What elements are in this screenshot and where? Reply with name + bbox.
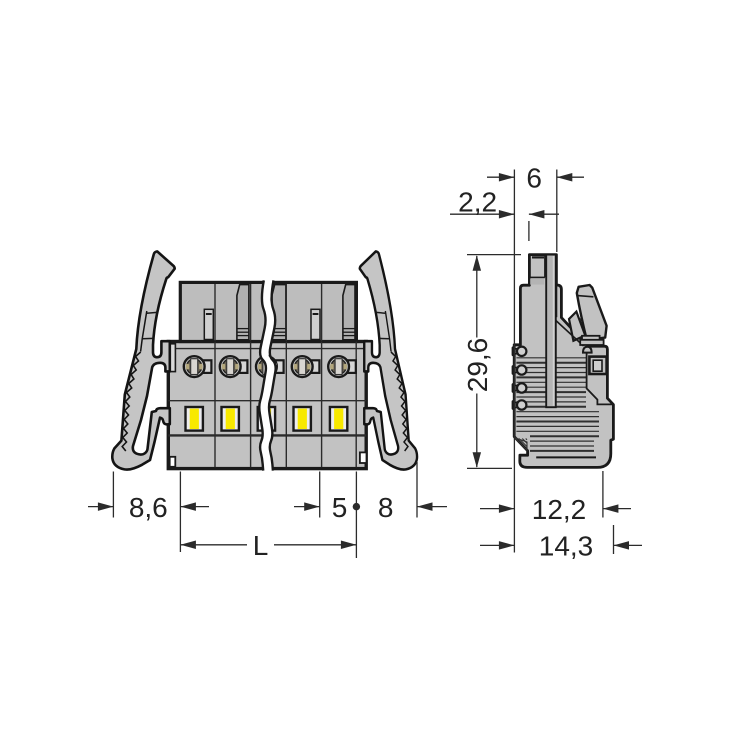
svg-text:6: 6 (526, 162, 542, 193)
svg-text:5: 5 (332, 492, 348, 523)
svg-text:8: 8 (378, 492, 394, 523)
svg-text:2,2: 2,2 (458, 187, 497, 218)
svg-text:12,2: 12,2 (532, 494, 587, 525)
svg-text:8,6: 8,6 (129, 492, 168, 523)
svg-text:14,3: 14,3 (539, 531, 594, 562)
svg-text:L: L (253, 530, 269, 561)
svg-text:29,6: 29,6 (462, 338, 493, 393)
